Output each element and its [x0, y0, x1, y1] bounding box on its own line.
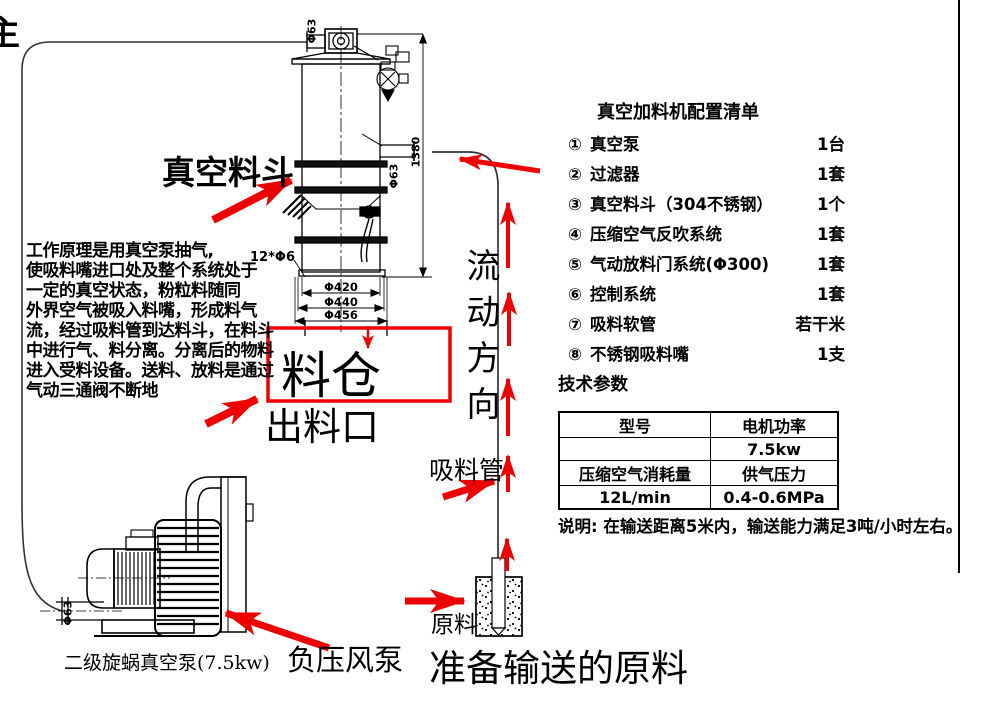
- config-item-6: ⑥控制系统1套: [568, 281, 845, 309]
- tech-params-title: 技术参数: [558, 371, 628, 396]
- item-number: ④: [568, 225, 582, 244]
- config-item-4: ④压缩空气反吹系统1套: [568, 221, 845, 249]
- raw-material-caption: 准备输送的原料: [429, 638, 688, 692]
- dim-dia420: Φ420: [324, 280, 358, 294]
- chute-hatching: [283, 195, 311, 219]
- item-qty: 1个: [817, 191, 845, 215]
- item-qty: 1支: [817, 341, 845, 365]
- item-number: ⑧: [568, 345, 582, 364]
- dim-inlet-pipe: Φ63: [388, 164, 401, 189]
- cell-pressure-value: 0.4-0.6MPa: [711, 486, 839, 510]
- raw-material-label: 原料: [431, 605, 477, 639]
- item-qty: 若干米: [796, 311, 846, 335]
- suction-nozzle: [492, 558, 505, 628]
- drawing-page: 主 真空料斗 工作原理是用真空泵抽气, 使吸料嘴进口处及整个系统处于 一定的真空…: [0, 0, 999, 710]
- item-name: 气动放料门系统(Φ300): [590, 255, 769, 274]
- config-item-3: ③真空料斗（304不锈钢）1个: [568, 191, 845, 219]
- principle-line: 一定的真空状态，粉粒料随同: [26, 281, 274, 301]
- principle-line: 气动三通阀不断地: [26, 381, 274, 401]
- table-row: 压缩空气消耗量 供气压力: [559, 461, 838, 486]
- principle-text-block: 工作原理是用真空泵抽气, 使吸料嘴进口处及整个系统处于 一定的真空状态，粉粒料随…: [26, 241, 274, 401]
- item-name: 真空料斗（304不锈钢）: [590, 195, 773, 214]
- flow-up-arrows: [507, 203, 509, 571]
- tech-params-table: 型号 电机功率 7.5kw 压缩空气消耗量 供气压力 12L/min 0.4-0…: [558, 411, 839, 510]
- item-number: ⑤: [568, 255, 582, 274]
- tech-params-note: 说明: 在输送距离5米内，输送能力满足3吨/小时左右。: [558, 513, 962, 537]
- principle-line: 使吸料嘴进口处及整个系统处于: [26, 261, 274, 281]
- fan-label: 负压风泵: [287, 637, 403, 679]
- item-name: 压缩空气反吹系统: [590, 225, 722, 244]
- item-name: 控制系统: [590, 285, 656, 304]
- discharge-valve: [360, 206, 380, 262]
- item-qty: 1套: [817, 251, 845, 275]
- inlet-pipe-stub: [362, 134, 414, 161]
- table-row: 型号 电机功率: [559, 412, 838, 438]
- hopper-label: 真空料斗: [162, 146, 294, 194]
- config-item-1: ①真空泵1台: [568, 131, 845, 159]
- pump-caption: 二级旋蜗真空泵(7.5kw): [64, 648, 270, 675]
- item-qty: 1套: [817, 161, 845, 185]
- inlet-arrow: [460, 159, 540, 171]
- cell-model-value: [559, 438, 711, 461]
- item-number: ⑦: [568, 315, 582, 334]
- item-name: 吸料软管: [590, 315, 656, 334]
- item-name: 真空泵: [590, 135, 640, 154]
- principle-line: 外界空气被吸入料嘴，形成料气: [26, 301, 274, 321]
- outlet-label: 出料口: [265, 396, 379, 451]
- dim-dia440: Φ440: [324, 295, 358, 309]
- config-list-title: 真空加料机配置清单: [597, 98, 759, 124]
- table-row: 7.5kw: [559, 438, 838, 461]
- cell-air-header: 压缩空气消耗量: [559, 461, 711, 486]
- item-qty: 1套: [817, 221, 845, 245]
- item-number: ②: [568, 165, 582, 184]
- dim-dia456: Φ456: [324, 308, 358, 322]
- cell-power-header: 电机功率: [711, 412, 839, 438]
- item-qty: 1套: [817, 281, 845, 305]
- config-item-8: ⑧不锈钢吸料嘴1支: [568, 341, 845, 369]
- outlet-arrow: [206, 399, 257, 424]
- cell-power-value: 7.5kw: [711, 438, 839, 461]
- item-name: 过滤器: [590, 165, 640, 184]
- item-number: ⑥: [568, 285, 582, 304]
- dim-top-pipe: Φ63: [306, 19, 319, 44]
- principle-line: 工作原理是用真空泵抽气,: [26, 241, 274, 261]
- flow-direction-label: 流动方向: [456, 248, 505, 432]
- item-name: 不锈钢吸料嘴: [590, 345, 689, 364]
- cell-air-value: 12L/min: [559, 486, 711, 510]
- principle-line: 中进行气、料分离。分离后的物料: [26, 341, 274, 361]
- dim-height: 1380: [410, 137, 423, 168]
- cell-model-header: 型号: [559, 412, 711, 438]
- principle-line: 流，经过吸料管到达料斗，在料斗: [26, 321, 274, 341]
- config-item-2: ②过滤器1套: [568, 161, 845, 189]
- config-item-7: ⑦吸料软管若干米: [568, 311, 845, 339]
- principle-line: 进入受料设备。送料、放料是通过: [26, 361, 274, 381]
- cell-pressure-header: 供气压力: [711, 461, 839, 486]
- config-item-5: ⑤气动放料门系统(Φ300)1套: [568, 251, 845, 279]
- dim-pump-inlet: Φ63: [62, 601, 75, 626]
- clipped-edge-character: 主: [0, 6, 20, 55]
- table-row: 12L/min 0.4-0.6MPa: [559, 486, 838, 510]
- item-qty: 1台: [817, 131, 845, 155]
- dim-bolt-holes: 12*Φ6: [250, 250, 295, 265]
- item-number: ③: [568, 195, 582, 214]
- item-number: ①: [568, 135, 582, 154]
- suction-pipe-label: 吸料管: [429, 451, 504, 487]
